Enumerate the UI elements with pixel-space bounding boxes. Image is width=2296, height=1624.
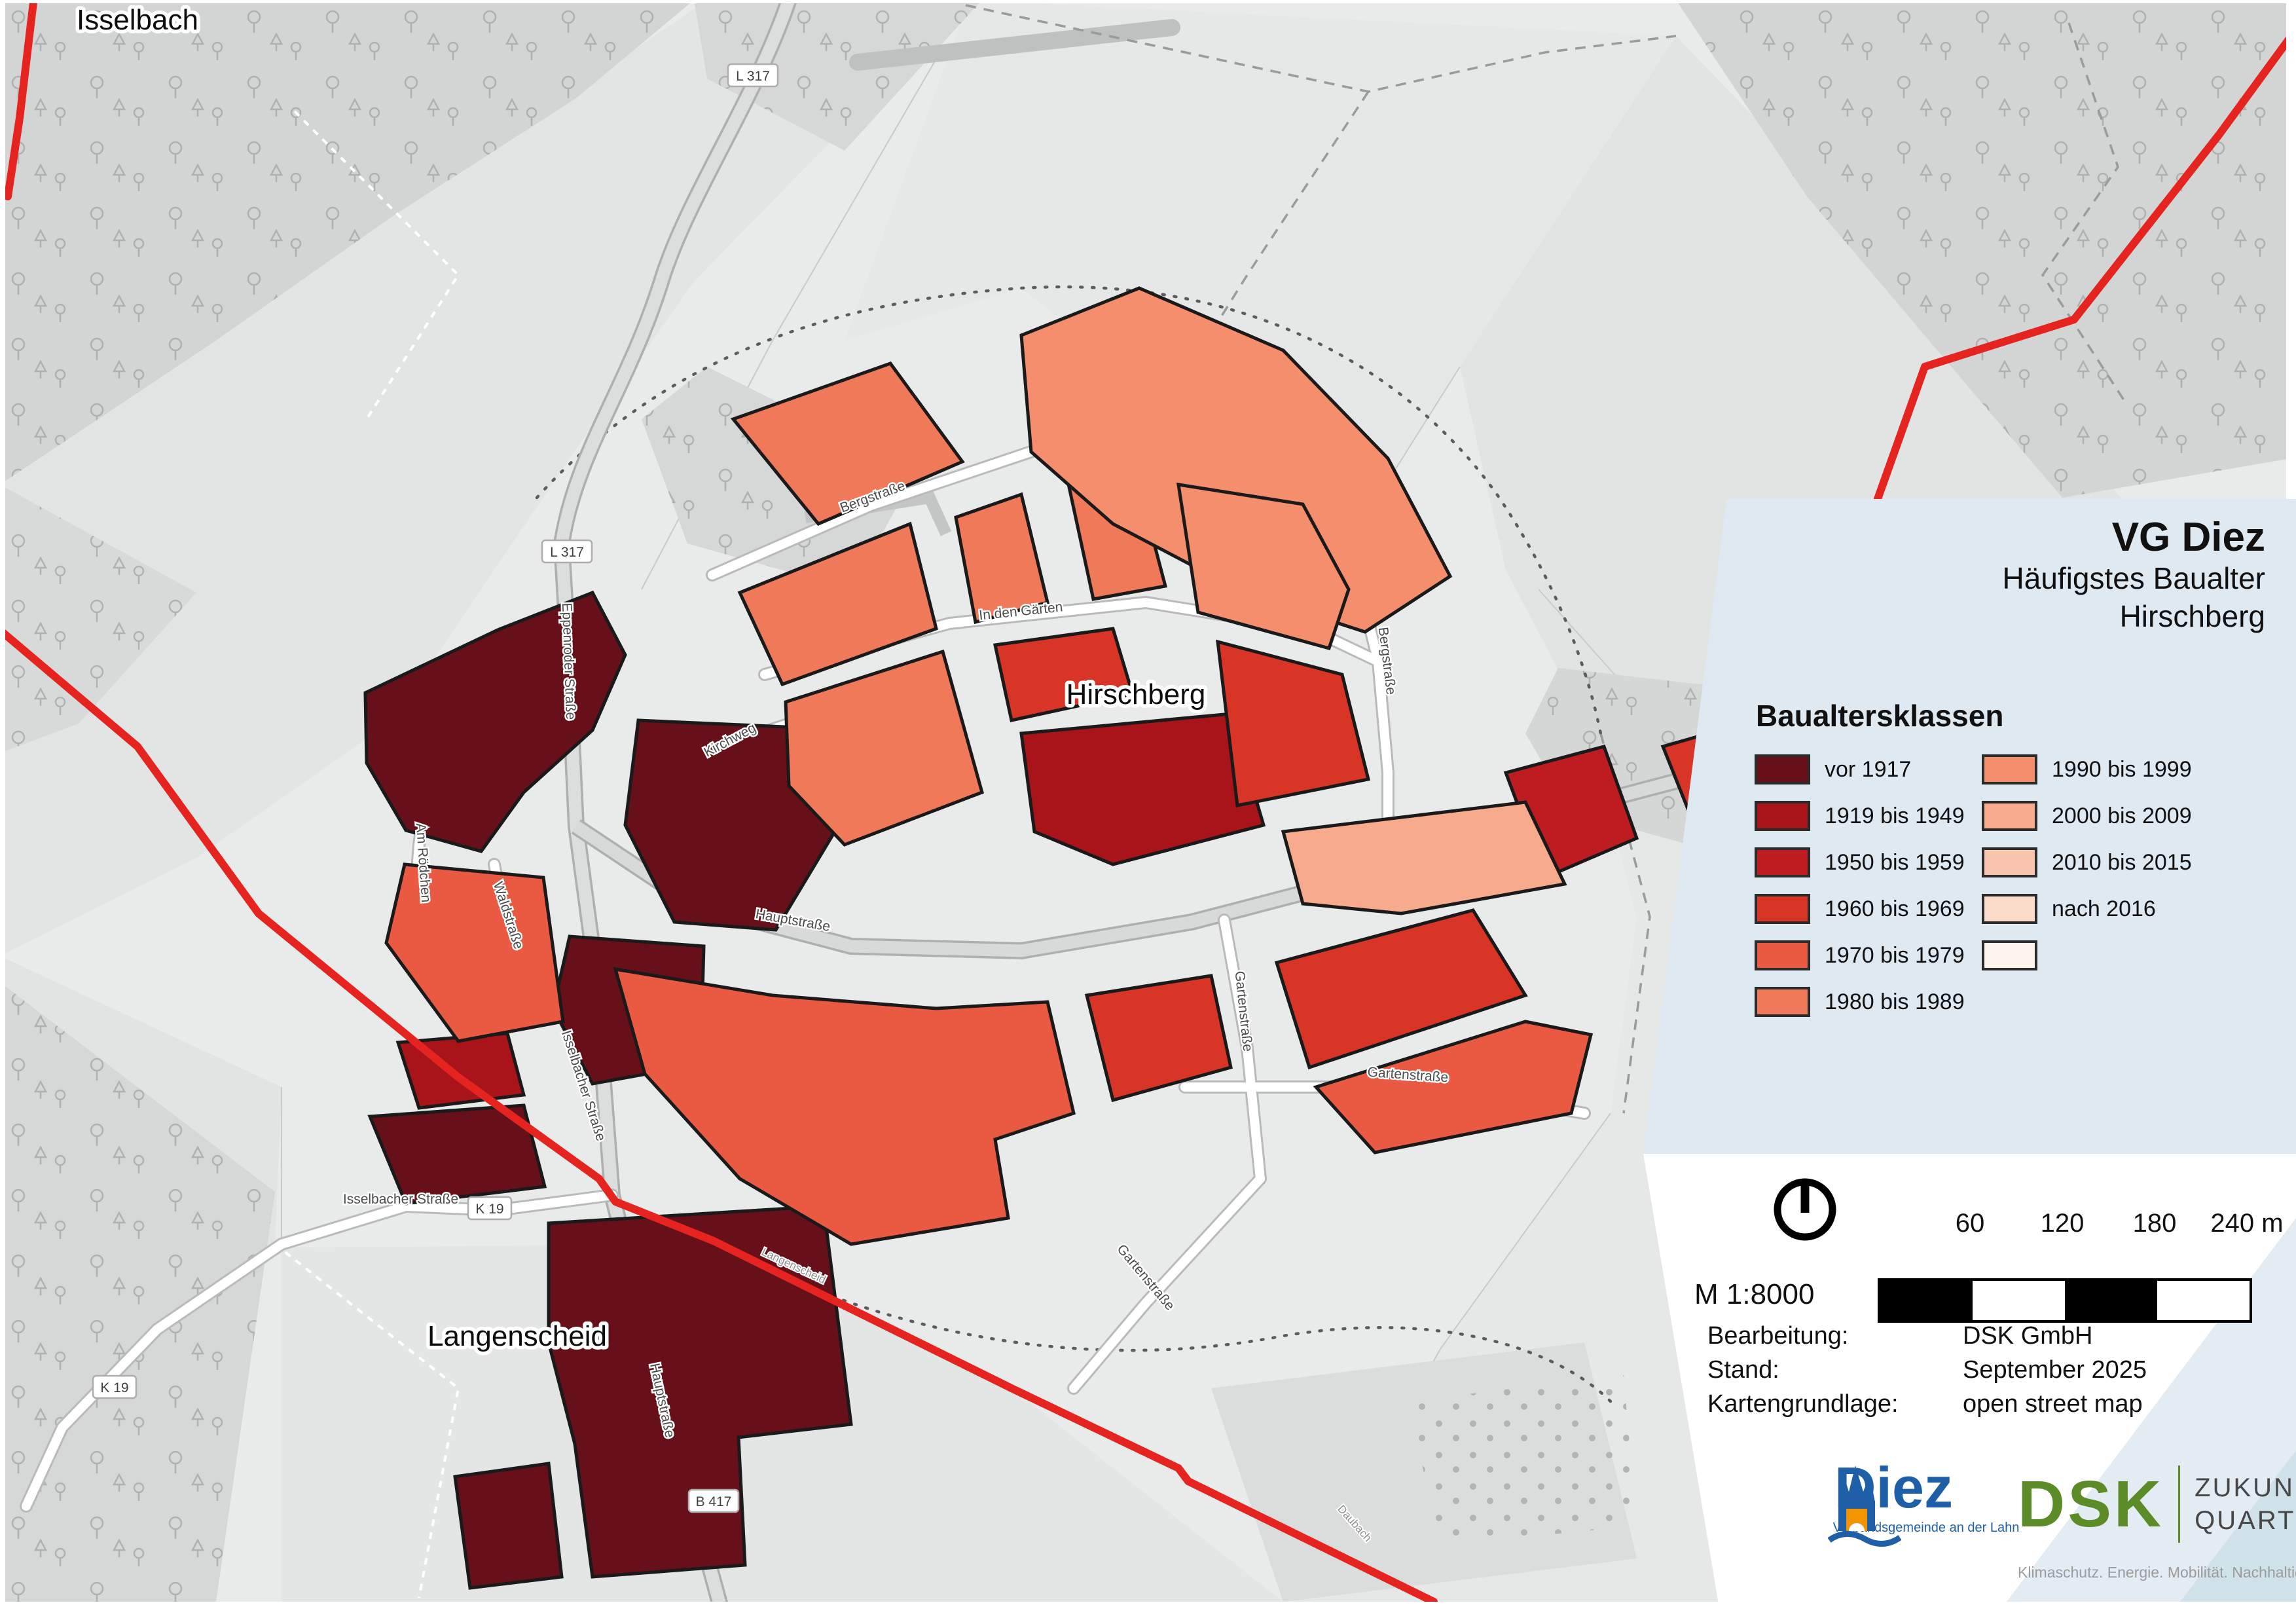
street-label: Isselbacher Straße	[343, 1192, 458, 1207]
legend-row: 1980 bis 1989	[1755, 987, 1965, 1017]
badge-k19: K 19	[475, 1202, 503, 1217]
parcel-vor-1917	[455, 1464, 562, 1588]
legend-label: vor 1917	[1825, 757, 1911, 783]
scale-tick: 120	[2041, 1209, 2085, 1238]
attribution-label: Bearbeitung:	[1707, 1319, 1963, 1353]
legend-swatch	[1755, 847, 1810, 877]
dsk-logo-claim: ZUKUNFT QUARTIER	[2195, 1471, 2296, 1537]
legend-label: 1990 bis 1999	[2052, 757, 2192, 783]
legend-column-right: 1990 bis 1999 2000 bis 2009 2010 bis 201…	[1982, 754, 2192, 987]
legend-row: 2000 bis 2009	[1982, 801, 2192, 831]
legend-label: nach 2016	[2052, 896, 2156, 922]
place-label-hirschberg: Hirschberg	[1066, 678, 1206, 710]
dsk-logo-name: DSK	[2018, 1471, 2164, 1537]
scale-tick: 60	[1956, 1209, 1985, 1238]
diez-logo: Diez Verbandsgemeinde an der Lahn	[1828, 1459, 2024, 1536]
orchard-bottom-center	[1211, 1342, 1637, 1602]
legend-heading: Baualtersklassen	[1756, 698, 2003, 733]
dsk-claim-line2: QUARTIER	[2195, 1504, 2296, 1537]
scale-segment	[1880, 1281, 1973, 1320]
legend-row: 2010 bis 2015	[1982, 847, 2192, 877]
badge-l317: L 317	[550, 545, 584, 560]
place-label-isselbach: Isselbach	[77, 4, 198, 36]
legend-column-left: vor 1917 1919 bis 1949 1950 bis 1959 196…	[1755, 754, 1965, 1033]
attribution-label: Kartengrundlage:	[1707, 1387, 1963, 1421]
scale-segment	[1973, 1281, 2065, 1320]
legend-label: 1960 bis 1969	[1825, 896, 1965, 922]
attribution-label: Stand:	[1707, 1353, 1963, 1387]
badge-b417: B 417	[696, 1494, 732, 1509]
legend-swatch	[1755, 754, 1810, 784]
legend-row: vor 1917	[1755, 754, 1965, 784]
legend-row: nach 2016	[1982, 894, 2192, 924]
legend-swatch	[1982, 754, 2037, 784]
legend-label: 1980 bis 1989	[1825, 989, 1965, 1015]
legend-row: 1919 bis 1949	[1755, 801, 1965, 831]
attribution-block: Bearbeitung: DSK GmbH Stand: September 2…	[1707, 1319, 2147, 1421]
map-title: VG Diez	[1807, 516, 2265, 559]
diez-castle-icon	[1828, 1459, 1901, 1551]
legend-swatch	[1755, 801, 1810, 831]
legend-swatch	[1982, 940, 2037, 970]
legend-row: 1960 bis 1969	[1755, 894, 1965, 924]
attribution-row: Kartengrundlage: open street map	[1707, 1387, 2147, 1421]
legend-row	[1982, 940, 2192, 970]
legend-label: 2010 bis 2015	[2052, 850, 2192, 876]
place-label-langenscheid: Langenscheid	[428, 1320, 607, 1352]
legend-swatch	[1755, 987, 1810, 1017]
attribution-row: Stand: September 2025	[1707, 1353, 2147, 1387]
scale-tick: 240 m	[2210, 1209, 2283, 1238]
scale-ratio: M 1:8000	[1694, 1278, 1814, 1311]
legend-label: 2000 bis 2009	[2052, 803, 2192, 829]
scale-tick-labels: 60 120 180 240 m	[1878, 1209, 2247, 1240]
legend-row: 1950 bis 1959	[1755, 847, 1965, 877]
badge-k19: K 19	[100, 1380, 128, 1395]
legend-row: 1990 bis 1999	[1982, 754, 2192, 784]
dsk-logo: DSK ZUKUNFT QUARTIER	[2018, 1466, 2296, 1543]
map-subtitle: Häufigstes Baualter	[1807, 559, 2265, 597]
dsk-claim-line1: ZUKUNFT	[2195, 1471, 2296, 1504]
legend-swatch	[1755, 940, 1810, 970]
map-title-block: VG Diez Häufigstes Baualter Hirschberg	[1807, 516, 2265, 635]
map-area: Hirschberg	[1807, 597, 2265, 635]
attribution-row: Bearbeitung: DSK GmbH	[1707, 1319, 2147, 1353]
attribution-value: open street map	[1963, 1387, 2143, 1421]
legend-label: 1919 bis 1949	[1825, 803, 1965, 829]
panels	[1643, 499, 2296, 1624]
dsk-logo-subtext: Klimaschutz. Energie. Mobilität. Nachhal…	[2018, 1564, 2296, 1581]
scale-segment	[2065, 1281, 2157, 1320]
legend-row: 1970 bis 1979	[1755, 940, 1965, 970]
map-sheet: L 317 L 317 B 417 B 417 K 19 K 19 Bergst…	[0, 0, 2296, 1624]
legend-swatch	[1982, 847, 2037, 877]
legend-swatch	[1755, 894, 1810, 924]
dsk-logo-divider	[2178, 1466, 2180, 1543]
scale-segment	[2157, 1281, 2250, 1320]
badge-l317: L 317	[736, 69, 770, 84]
legend-swatch	[1982, 801, 2037, 831]
legend-label: 1950 bis 1959	[1825, 850, 1965, 876]
scale-tick: 180	[2133, 1209, 2177, 1238]
legend-label: 1970 bis 1979	[1825, 943, 1965, 969]
scale-bar	[1878, 1278, 2252, 1323]
attribution-value: September 2025	[1963, 1353, 2147, 1387]
attribution-value: DSK GmbH	[1963, 1319, 2092, 1353]
legend-swatch	[1982, 894, 2037, 924]
